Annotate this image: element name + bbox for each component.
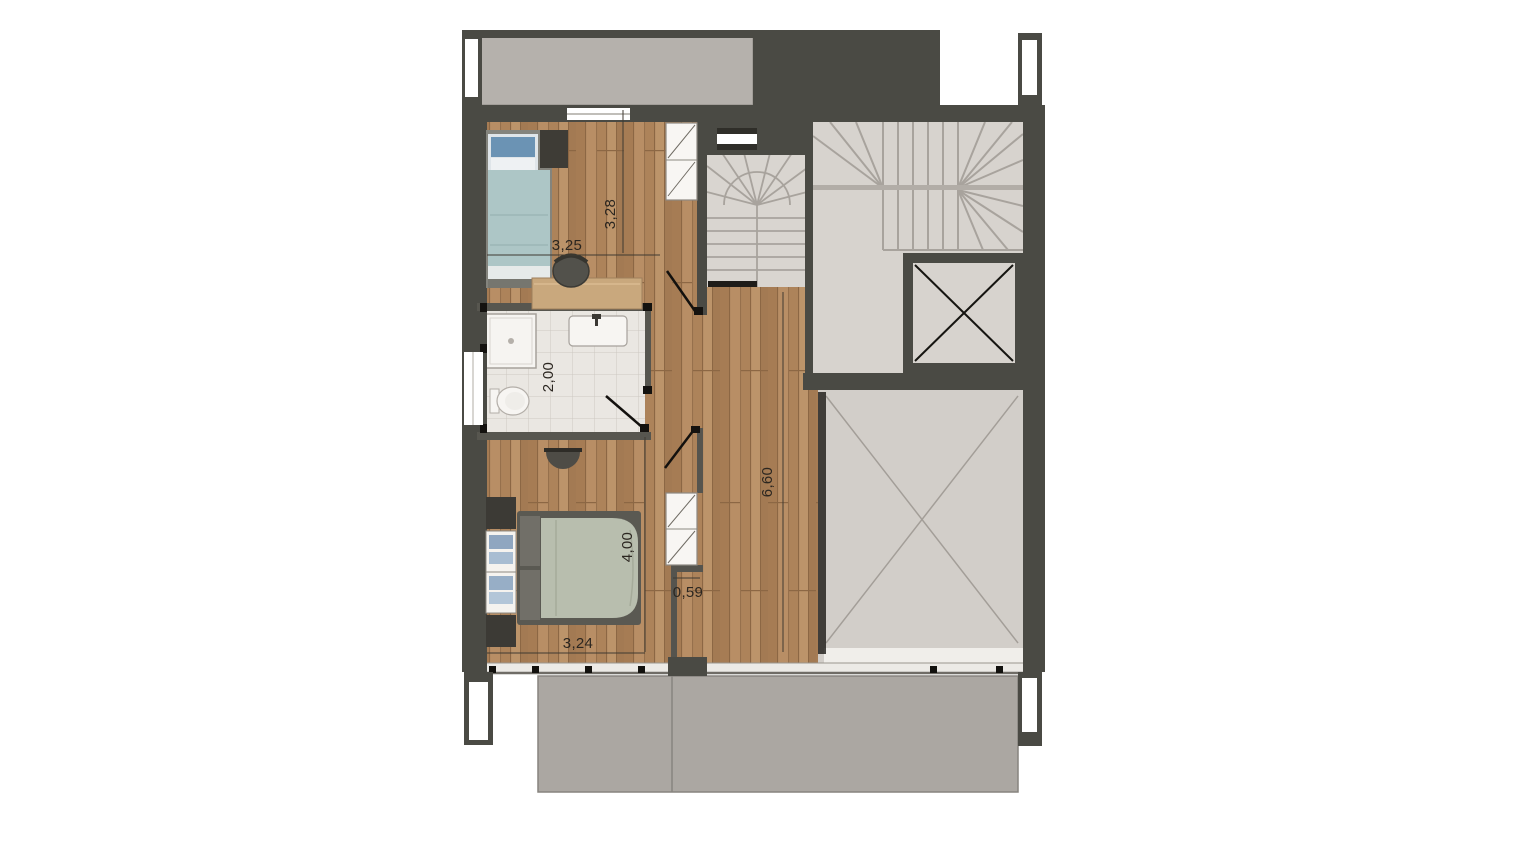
wall-nook-jog (671, 565, 703, 572)
terrace-bottom (538, 676, 1018, 792)
toilet (490, 387, 529, 415)
desk-chair (553, 255, 589, 287)
wall-bathroom-east (645, 303, 651, 393)
desk (532, 278, 642, 309)
window-winder (717, 128, 757, 150)
nightstand (540, 130, 568, 168)
wardrobe-bottom (666, 493, 697, 565)
wall-stair-west (805, 122, 813, 390)
dim-nook-width: 0,59 (673, 584, 703, 601)
window-left-stub (469, 682, 488, 740)
dim-bedroom1-depth: 3,28 (602, 199, 619, 229)
stair-mid-rail (813, 185, 1023, 190)
floor-plan-canvas: 3,25 3,28 2,00 6,60 4,00 0,59 3,24 (0, 0, 1536, 864)
dim-bedroom2-width: 3,24 (563, 635, 593, 652)
wall-top-main (462, 105, 1042, 122)
wall-top-mass (753, 37, 940, 105)
dim-bedroom2-depth: 4,00 (619, 532, 636, 562)
double-bed (517, 511, 641, 625)
winder-stair (707, 153, 807, 287)
wall-bathroom-bottom (477, 432, 651, 440)
shelf-unit (486, 497, 516, 647)
floor-plan-drawing: 3,25 3,28 2,00 6,60 4,00 0,59 3,24 (0, 0, 1536, 864)
wall-top-strip (462, 30, 940, 38)
elevator-shaft (903, 253, 1023, 373)
dim-bedroom1-width: 3,25 (552, 237, 582, 254)
wall-threshold (668, 657, 707, 676)
washbasin (569, 314, 627, 346)
window-top-left (465, 39, 478, 97)
shower (486, 314, 536, 368)
bathroom (483, 311, 645, 432)
wall-stair-bottom (803, 373, 1042, 390)
window-right-pier (1022, 40, 1037, 95)
dim-hallway-length: 6,60 (759, 467, 776, 497)
window-right-stub (1022, 678, 1037, 732)
terrace-top (477, 37, 753, 105)
wall-bedroom2-east (697, 428, 703, 493)
stair-guard-rail (708, 281, 757, 287)
void-opening (818, 390, 1023, 668)
glass-facade (487, 663, 1023, 673)
wardrobe-top (666, 123, 697, 200)
dim-bathroom-depth: 2,00 (540, 362, 557, 392)
